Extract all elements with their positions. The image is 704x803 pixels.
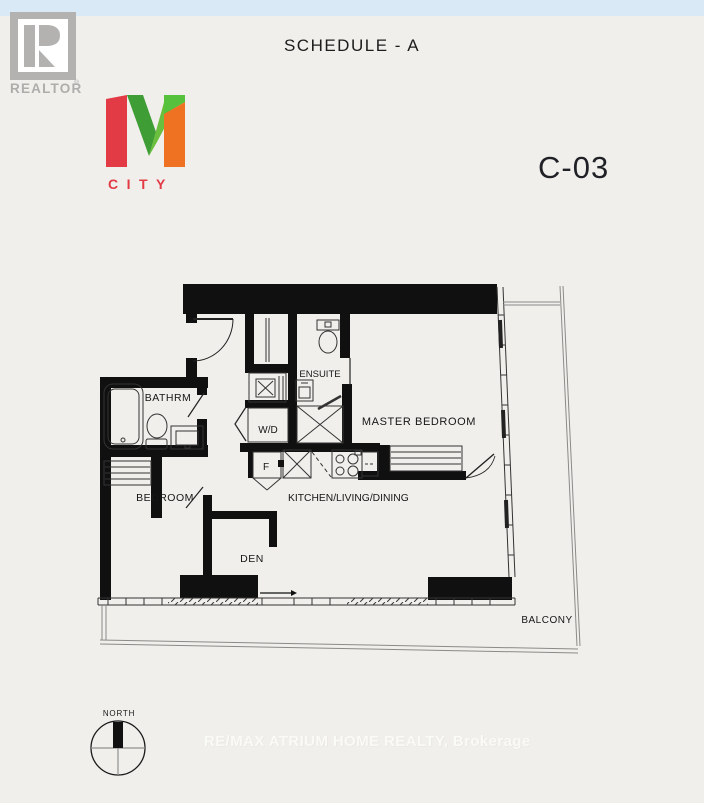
kitchen-sink-icon: [278, 450, 311, 478]
label-kitchen: KITCHEN/LIVING/DINING: [288, 493, 409, 504]
linen-closet: [249, 373, 286, 402]
shower-icon: [297, 396, 343, 443]
label-bathroom: BATHRM: [145, 392, 192, 404]
label-balcony: BALCONY: [521, 615, 572, 626]
label-den: DEN: [240, 553, 264, 565]
counter-corner-dashed: [312, 452, 331, 477]
bedroom-closet: [104, 461, 151, 485]
label-washer-dryer: W/D: [258, 425, 277, 436]
north-label: NORTH: [103, 709, 135, 718]
schedule-page: SCHEDULE - A C-03 REALTOR ® CITY: [0, 0, 704, 803]
label-bedroom: BEDROOM: [136, 492, 194, 504]
stove-icon: [332, 450, 362, 478]
walls: [100, 284, 512, 600]
label-master-bedroom: MASTER BEDROOM: [362, 416, 476, 428]
kitchen-fixtures: [253, 450, 378, 490]
wd-bifold-door: [235, 407, 246, 441]
north-compass-icon: NORTH: [91, 709, 145, 775]
label-fridge: F: [263, 462, 269, 473]
master-bedroom-door: [466, 454, 495, 478]
brokerage-watermark: RE/MAX ATRIUM HOME REALTY, Brokerage: [204, 733, 524, 750]
hall-closet: [266, 318, 269, 362]
master-closet: [390, 446, 462, 471]
ensuite-sink-icon: [296, 380, 313, 401]
entry-door: [193, 319, 233, 361]
label-ensuite: ENSUITE: [299, 369, 340, 380]
floor-plan: BATHRM ENSUITE W/D MASTER BEDROOM F KITC…: [0, 0, 704, 803]
window-wall-right: [497, 287, 515, 577]
balcony-slider-arrow: [260, 590, 297, 596]
toilet-icon: [146, 414, 167, 449]
ensuite-fixtures: [296, 320, 343, 443]
ensuite-toilet-icon: [317, 320, 339, 353]
